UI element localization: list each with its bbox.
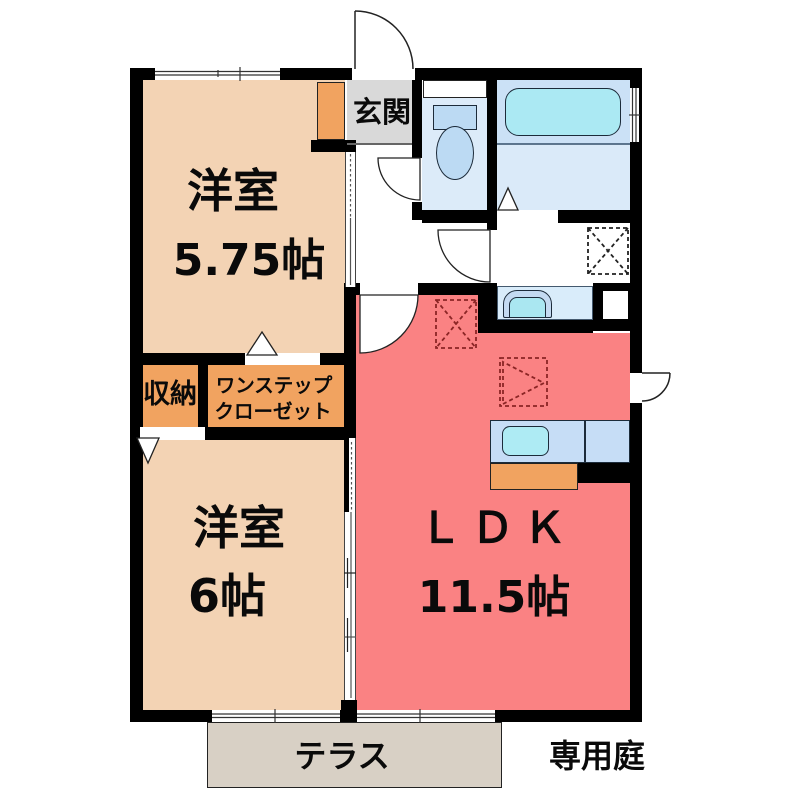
closet-label-line1: ワンステップ — [216, 376, 333, 396]
entrance-step-line — [347, 143, 412, 145]
wall-shoebox-chunk — [311, 140, 356, 152]
kitchen-cabinet — [490, 463, 578, 490]
ldk-name: ＬＤＫ — [419, 506, 575, 551]
wall-toilet-bath — [487, 80, 497, 223]
wall-washroom-bottom — [478, 320, 593, 333]
ldk-door-opening — [360, 283, 418, 295]
storage-door-opening — [140, 427, 205, 440]
terrace-window-1 — [212, 710, 340, 722]
kitchen-sink — [502, 426, 549, 456]
pipe-space-niche — [603, 291, 628, 319]
garden-door-arc — [642, 373, 670, 401]
partition-half-wall — [344, 438, 349, 512]
ldk-size: 11.5帖 — [418, 575, 571, 621]
vanity-basin-inner — [509, 297, 546, 318]
washing-machine-space-symbol — [588, 228, 628, 274]
bedroom1-sliding-door — [345, 152, 356, 287]
washroom-door-opening — [487, 230, 497, 283]
wall-kitchen-stub — [578, 463, 630, 483]
bathroom-window — [630, 88, 639, 142]
floor-plan: 玄関 洋室 5.75帖 収納 ワンステップ クローゼット 洋室 6帖 ＬＤＫ 1… — [0, 0, 800, 800]
entrance-label: 玄関 — [353, 97, 411, 127]
washroom-door-arc — [438, 230, 490, 282]
wall-left — [130, 68, 143, 722]
bedroom1-name: 洋室 — [187, 167, 279, 215]
wall-ldk-left — [344, 283, 356, 443]
entrance-door-arc — [355, 11, 413, 69]
bedroom2-name: 洋室 — [193, 504, 285, 552]
garden-door-opening — [630, 373, 642, 403]
storage-label: 収納 — [143, 381, 197, 409]
closet-label-line2: クローゼット — [214, 402, 331, 422]
wall-partition-foot — [341, 700, 357, 722]
toilet-bowl — [436, 126, 474, 180]
bath-door-opening — [497, 210, 558, 223]
toilet-door-opening — [412, 158, 422, 202]
shoe-cabinet — [317, 82, 345, 140]
closet-door-opening — [245, 353, 320, 365]
bedroom1-window — [155, 68, 280, 80]
bathroom-floor — [497, 144, 630, 210]
toilet-window — [423, 80, 487, 98]
entrance-door-opening — [352, 68, 415, 80]
bedroom1-size: 5.75帖 — [173, 238, 326, 284]
bathtub — [505, 88, 621, 136]
terrace-window-2 — [357, 710, 495, 722]
bedroom2-size: 6帖 — [188, 572, 266, 620]
terrace-label: テラス — [294, 740, 389, 774]
kitchen-counter-divider — [584, 420, 586, 463]
garden-label: 専用庭 — [549, 740, 645, 774]
